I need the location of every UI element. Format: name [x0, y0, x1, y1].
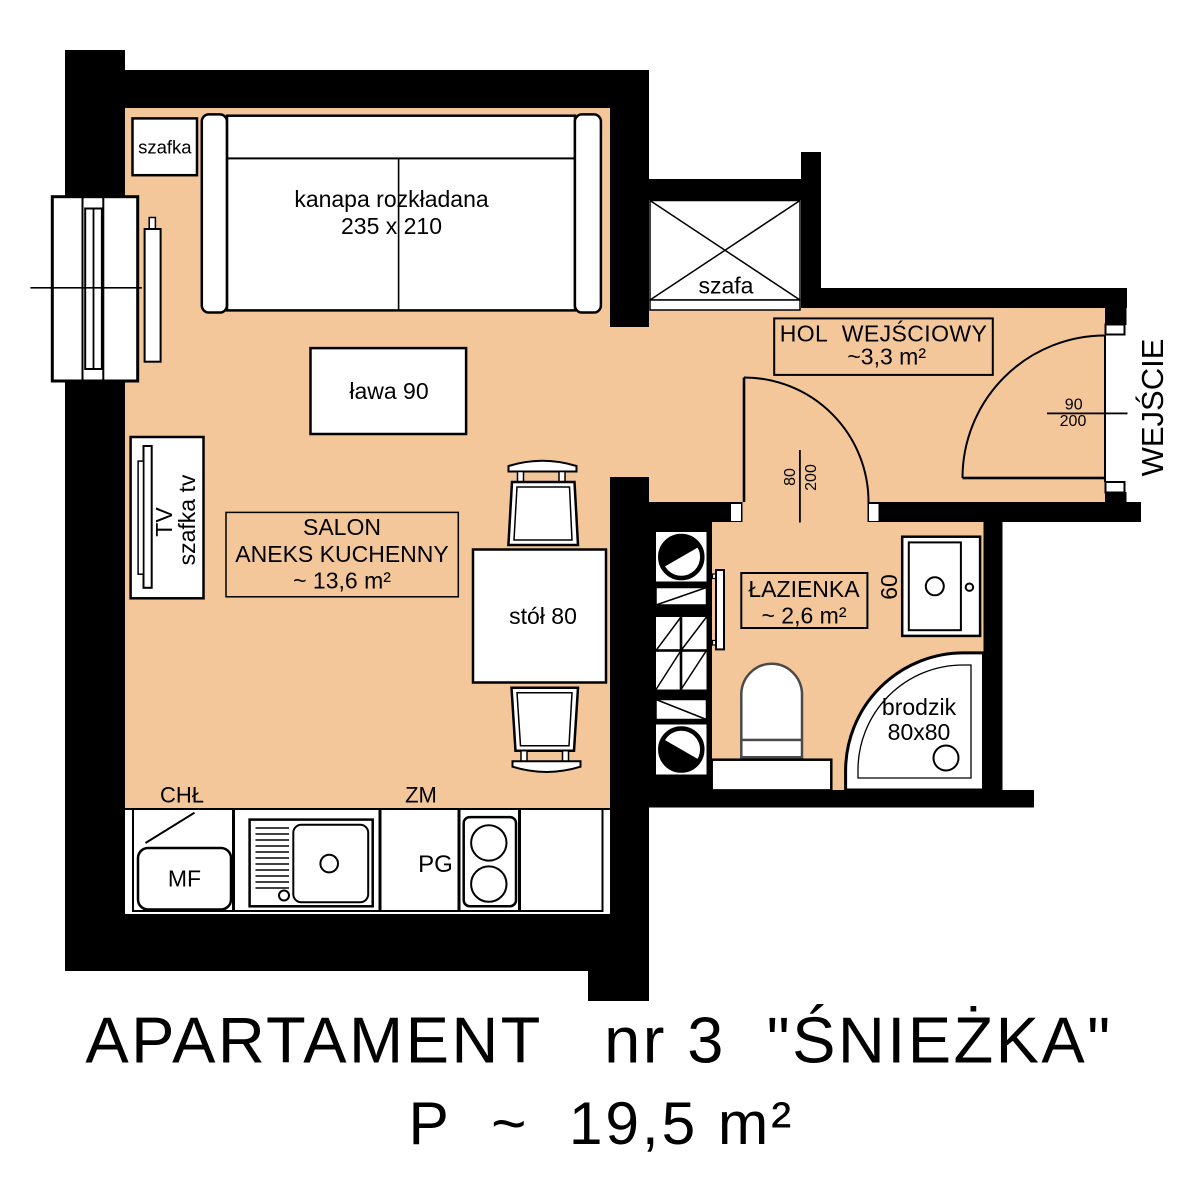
- svg-text:HOL WEJŚCIOWY: HOL WEJŚCIOWY: [780, 320, 988, 347]
- svg-text:MF: MF: [168, 866, 201, 892]
- svg-text:SALON: SALON: [303, 514, 381, 540]
- svg-text:APARTAMENT nr 3 "ŚNIEŻKA": APARTAMENT nr 3 "ŚNIEŻKA": [85, 1004, 1112, 1077]
- svg-text:ŁAZIENKA: ŁAZIENKA: [748, 576, 860, 602]
- svg-text:P ~ 19,5 m²: P ~ 19,5 m²: [409, 1089, 795, 1157]
- svg-text:200: 200: [803, 464, 820, 491]
- svg-text:80: 80: [782, 468, 799, 486]
- svg-text:~ 13,6 m²: ~ 13,6 m²: [293, 568, 391, 594]
- svg-text:CHŁ: CHŁ: [160, 783, 204, 808]
- svg-text:80x80: 80x80: [888, 719, 951, 745]
- svg-text:235 x 210: 235 x 210: [341, 213, 442, 239]
- svg-text:200: 200: [1060, 413, 1087, 430]
- svg-text:WEJŚCIE: WEJŚCIE: [1134, 339, 1170, 477]
- svg-text:kanapa rozkładana: kanapa rozkładana: [294, 186, 489, 212]
- svg-text:90: 90: [1065, 397, 1083, 414]
- svg-text:brodzik: brodzik: [882, 694, 957, 720]
- svg-text:PG: PG: [418, 851, 453, 878]
- svg-text:~3,3 m²: ~3,3 m²: [847, 344, 926, 370]
- svg-text:ANEKS KUCHENNY: ANEKS KUCHENNY: [235, 541, 448, 567]
- svg-text:~ 2,6 m²: ~ 2,6 m²: [761, 603, 846, 629]
- svg-text:ZM: ZM: [405, 783, 437, 808]
- svg-text:60: 60: [876, 574, 902, 600]
- svg-text:ława 90: ława 90: [349, 378, 428, 404]
- svg-text:szafa: szafa: [699, 273, 754, 299]
- svg-text:stół 80: stół 80: [509, 603, 577, 629]
- svg-text:szafka: szafka: [138, 137, 192, 158]
- svg-text:szafka tv: szafka tv: [174, 474, 200, 565]
